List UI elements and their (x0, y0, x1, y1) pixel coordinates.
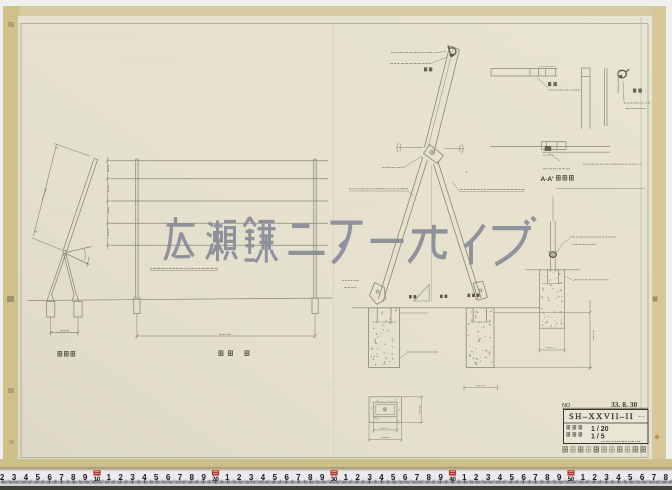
svg-text:8: 8 (427, 473, 432, 482)
svg-text:3: 3 (486, 473, 491, 482)
svg-text:5: 5 (273, 473, 278, 482)
svg-text:5: 5 (628, 473, 633, 482)
svg-text:5: 5 (510, 473, 515, 482)
svg-text:2: 2 (0, 473, 5, 482)
svg-text:3: 3 (367, 473, 372, 482)
svg-text:7: 7 (415, 473, 420, 482)
svg-text:8: 8 (664, 473, 669, 482)
svg-text:40: 40 (449, 477, 456, 483)
svg-text:1 / 20: 1 / 20 (591, 426, 609, 433)
svg-text:3: 3 (604, 473, 609, 482)
svg-text:4: 4 (616, 473, 621, 482)
svg-text:8: 8 (71, 473, 76, 482)
svg-text:1: 1 (581, 473, 586, 482)
svg-text:6: 6 (47, 473, 52, 482)
svg-text:8: 8 (545, 473, 550, 482)
svg-text:6: 6 (284, 473, 289, 482)
svg-text:SH–XXVII–II: SH–XXVII–II (569, 411, 634, 421)
svg-text:6: 6 (403, 473, 408, 482)
svg-text:9: 9 (557, 473, 562, 482)
svg-text:20: 20 (212, 477, 219, 483)
svg-text:5: 5 (391, 473, 396, 482)
svg-text:7: 7 (178, 473, 183, 482)
svg-text:2: 2 (592, 473, 597, 482)
svg-text:6: 6 (521, 473, 526, 482)
svg-text:9: 9 (83, 473, 88, 482)
svg-text:A-A': A-A' (541, 176, 555, 183)
svg-text:7: 7 (533, 473, 538, 482)
svg-text:2: 2 (237, 473, 242, 482)
svg-text:4: 4 (379, 473, 384, 482)
svg-text:8: 8 (190, 473, 195, 482)
svg-text:8: 8 (308, 473, 313, 482)
svg-text:33. 8. 30: 33. 8. 30 (611, 400, 638, 409)
svg-text:4: 4 (24, 473, 29, 482)
svg-text:30: 30 (331, 477, 338, 483)
svg-text:10: 10 (94, 477, 101, 483)
svg-text:1: 1 (225, 473, 230, 482)
svg-text:1 / 5: 1 / 5 (591, 434, 605, 441)
svg-text:1: 1 (344, 473, 349, 482)
svg-text:7: 7 (59, 473, 64, 482)
svg-text:7: 7 (296, 473, 301, 482)
svg-text:50: 50 (568, 477, 575, 483)
svg-text:3: 3 (12, 473, 17, 482)
svg-text:5: 5 (36, 473, 41, 482)
svg-text:9: 9 (201, 473, 206, 482)
svg-text:2: 2 (355, 473, 360, 482)
svg-text:7: 7 (652, 473, 657, 482)
svg-text:2: 2 (118, 473, 123, 482)
svg-text:6: 6 (640, 473, 645, 482)
svg-text:3: 3 (249, 473, 254, 482)
svg-text:5: 5 (154, 473, 159, 482)
svg-text:9: 9 (320, 473, 325, 482)
svg-text:2: 2 (474, 473, 479, 482)
svg-text:1: 1 (462, 473, 467, 482)
svg-text:4: 4 (261, 473, 266, 482)
svg-text:3: 3 (130, 473, 135, 482)
svg-text:4: 4 (142, 473, 147, 482)
svg-text:9: 9 (438, 473, 443, 482)
svg-text:6: 6 (166, 473, 171, 482)
svg-text:1: 1 (107, 473, 112, 482)
svg-text:4: 4 (498, 473, 503, 482)
